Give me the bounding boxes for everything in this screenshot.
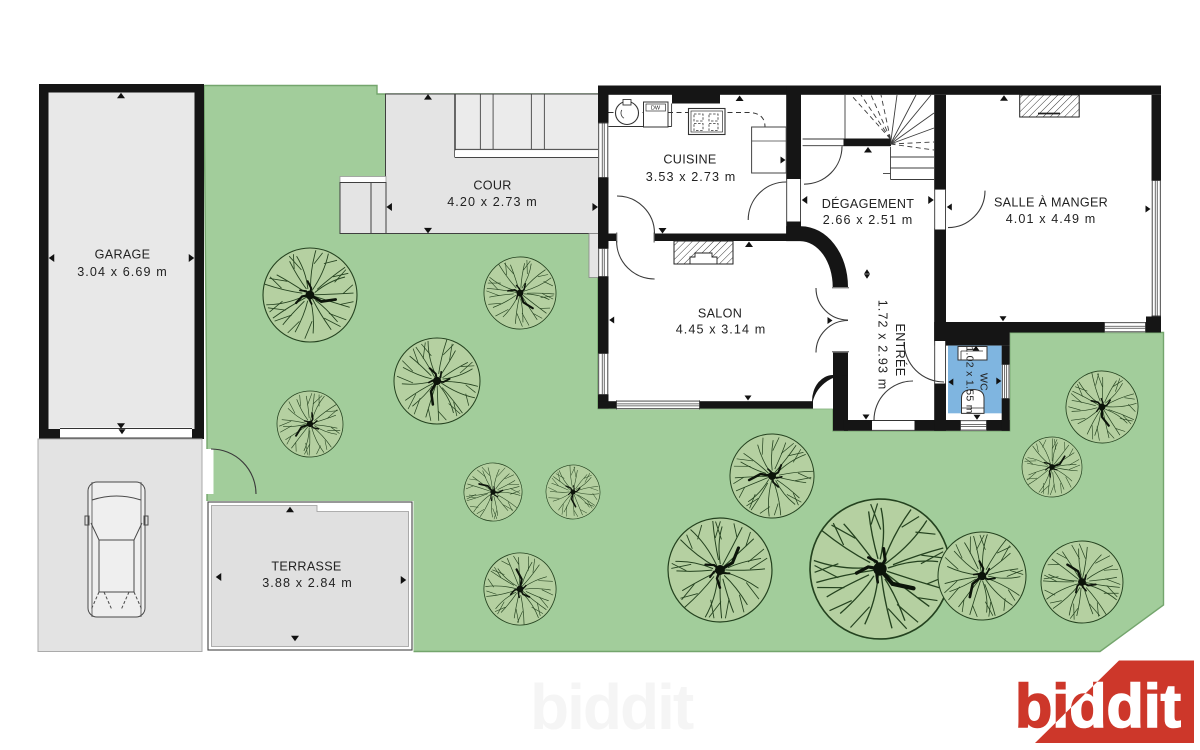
svg-text:ENTRÉE: ENTRÉE — [893, 324, 908, 377]
svg-text:COUR: COUR — [473, 179, 511, 193]
svg-text:biddit: biddit — [530, 671, 694, 743]
svg-text:3.04 x 6.69 m: 3.04 x 6.69 m — [77, 265, 168, 279]
svg-text:GARAGE: GARAGE — [95, 248, 151, 262]
svg-text:SALLE À MANGER: SALLE À MANGER — [994, 195, 1108, 210]
svg-text:1.02 x 1.55 m: 1.02 x 1.55 m — [964, 346, 976, 414]
svg-text:4.20 x 2.73 m: 4.20 x 2.73 m — [447, 195, 538, 209]
svg-text:4.45 x 3.14 m: 4.45 x 3.14 m — [676, 323, 767, 337]
svg-text:TERRASSE: TERRASSE — [271, 560, 341, 574]
svg-text:1.72 x 2.93 m: 1.72 x 2.93 m — [876, 300, 890, 391]
svg-text:3.88 x 2.84 m: 3.88 x 2.84 m — [262, 576, 353, 590]
svg-text:3.53 x 2.73 m: 3.53 x 2.73 m — [646, 170, 737, 184]
svg-text:4.01 x 4.49 m: 4.01 x 4.49 m — [1006, 212, 1097, 226]
svg-text:DW: DW — [651, 106, 661, 112]
svg-text:DÉGAGEMENT: DÉGAGEMENT — [822, 196, 915, 211]
svg-text:WC: WC — [978, 373, 990, 391]
svg-text:SALON: SALON — [698, 307, 742, 321]
svg-text:CUISINE: CUISINE — [663, 153, 716, 167]
svg-text:2.66 x 2.51 m: 2.66 x 2.51 m — [823, 213, 914, 227]
